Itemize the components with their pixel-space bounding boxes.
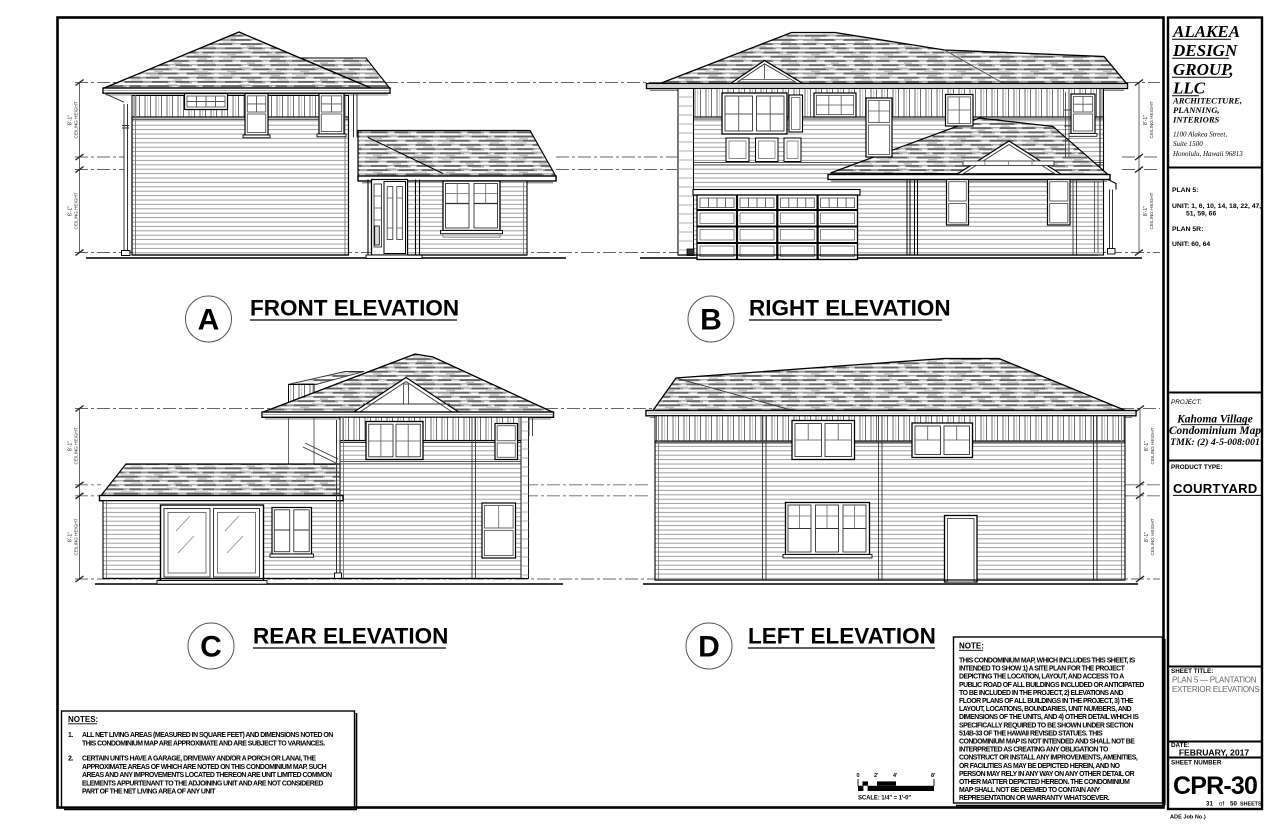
svg-text:8': 8': [931, 773, 936, 779]
svg-text:PLAN 5R:: PLAN 5R:: [1172, 226, 1203, 233]
svg-text:THIS CONDOMINIUM MAP, WHICH IN: THIS CONDOMINIUM MAP, WHICH INCLUDES THI…: [959, 658, 1136, 665]
svg-text:CEILING HEIGHT: CEILING HEIGHT: [1150, 518, 1155, 555]
svg-text:ALAKEA: ALAKEA: [1172, 22, 1240, 41]
svg-text:CEILING HEIGHT: CEILING HEIGHT: [74, 427, 79, 464]
svg-text:SPECIFICALLY REQUIRED TO BE SH: SPECIFICALLY REQUIRED TO BE SHOWN UNDER …: [959, 722, 1133, 729]
svg-text:1.: 1.: [68, 732, 73, 739]
svg-text:2': 2': [874, 773, 879, 779]
svg-text:CEILING HEIGHT: CEILING HEIGHT: [1150, 427, 1155, 464]
svg-text:NOTE:: NOTE:: [959, 642, 984, 651]
svg-text:Kahoma Village: Kahoma Village: [1176, 414, 1253, 426]
svg-text:INTENDED TO SHOW 1) A SITE PLA: INTENDED TO SHOW 1) A SITE PLAN FOR THE …: [959, 666, 1126, 673]
svg-text:PLANNING,: PLANNING,: [1173, 105, 1220, 115]
svg-text:0: 0: [857, 773, 860, 779]
svg-text:ARCHITECTURE,: ARCHITECTURE,: [1172, 96, 1242, 106]
svg-text:REPRESENTATION OR WARRANTY WHA: REPRESENTATION OR WARRANTY WHATSOEVER.: [959, 795, 1110, 802]
svg-text:UNIT: 60, 64: UNIT: 60, 64: [1172, 241, 1210, 248]
svg-text:FLOOR PLANS OF ALL BUILDINGS I: FLOOR PLANS OF ALL BUILDINGS IN THE PROJ…: [959, 698, 1134, 705]
svg-text:SHEET NUMBER: SHEET NUMBER: [1171, 760, 1222, 767]
svg-text:NOTES:: NOTES:: [68, 715, 98, 724]
svg-text:DESIGN: DESIGN: [1172, 41, 1238, 60]
svg-text:REAR ELEVATION: REAR ELEVATION: [253, 624, 448, 649]
svg-text:CEILING HEIGHT: CEILING HEIGHT: [74, 192, 79, 229]
svg-text:CONDOMINIUM MAP IS NOT INTENDE: CONDOMINIUM MAP IS NOT INTENDED AND SHAL…: [959, 739, 1135, 746]
svg-text:PROJECT:: PROJECT:: [1171, 399, 1202, 406]
svg-text:PERSON MAY RELY IN ANY WAY ON: PERSON MAY RELY IN ANY WAY ON ANY OTHER …: [959, 771, 1135, 778]
svg-text:CEILING HEIGHT: CEILING HEIGHT: [74, 101, 79, 138]
svg-text:GROUP,: GROUP,: [1173, 60, 1234, 79]
svg-text:EXTERIOR ELEVATIONS: EXTERIOR ELEVATIONS: [1172, 685, 1259, 694]
svg-text:A: A: [198, 304, 220, 337]
svg-text:PRODUCT TYPE:: PRODUCT TYPE:: [1171, 464, 1222, 471]
svg-text:THIS CONDOMINIUM MAP ARE APPRO: THIS CONDOMINIUM MAP ARE APPROXIMATE AND…: [82, 740, 325, 747]
svg-text:514B-33 OF THE HAWAII REVISED: 514B-33 OF THE HAWAII REVISED STATUES. T…: [959, 730, 1103, 737]
svg-text:SHEET TITLE:: SHEET TITLE:: [1171, 668, 1213, 675]
svg-text:SHEETS: SHEETS: [1240, 802, 1262, 808]
svg-text:Suite 1500: Suite 1500: [1173, 140, 1203, 148]
svg-text:PART OF THE NET LIVING AREA OF: PART OF THE NET LIVING AREA OF ANY UNIT: [82, 789, 216, 796]
svg-text:50: 50: [1230, 801, 1237, 808]
svg-text:PLAN 5:: PLAN 5:: [1172, 187, 1198, 194]
svg-text:2.: 2.: [68, 756, 73, 763]
svg-text:CONSTRUCT OR INSTALL ANY IMPRO: CONSTRUCT OR INSTALL ANY IMPROVEMENTS, A…: [959, 755, 1138, 762]
svg-text:ELEMENTS APPURTENANT TO THE AD: ELEMENTS APPURTENANT TO THE ADJOINING UN…: [82, 780, 323, 787]
svg-text:CPR-30: CPR-30: [1173, 772, 1257, 800]
svg-text:UNIT: 1, 6, 10, 14, 18, 22, 47: UNIT: 1, 6, 10, 14, 18, 22, 47,: [1172, 203, 1261, 210]
svg-text:DIMENSIONS OF THE UNITS, AND 4: DIMENSIONS OF THE UNITS, AND 4) OTHER DE…: [959, 714, 1139, 721]
svg-text:Condominium Map: Condominium Map: [1169, 425, 1261, 437]
svg-text:31: 31: [1206, 801, 1213, 808]
svg-text:Honolulu, Hawaii 96813: Honolulu, Hawaii 96813: [1172, 150, 1243, 158]
svg-text:APPROXIMATE AREAS OF WHICH ARE: APPROXIMATE AREAS OF WHICH ARE NOTED ON …: [82, 764, 327, 771]
svg-text:AREAS AND ANY IMPROVEMENTS LOC: AREAS AND ANY IMPROVEMENTS LOCATED THERE…: [82, 772, 332, 779]
svg-text:LAYOUT, LOCATIONS, BOUNDARIES,: LAYOUT, LOCATIONS, BOUNDARIES, UNIT NUMB…: [959, 706, 1132, 713]
svg-text:ADE Job No.): ADE Job No.): [1170, 815, 1206, 821]
svg-text:OR FACILITIES AS MAY BE DEPICT: OR FACILITIES AS MAY BE DEPICTED HEREIN,…: [959, 763, 1121, 770]
svg-text:CEILING HEIGHT: CEILING HEIGHT: [1149, 192, 1154, 229]
svg-text:TO BE INCLUDED IN THE PROJECT,: TO BE INCLUDED IN THE PROJECT, 2) ELEVAT…: [959, 690, 1124, 697]
svg-text:ALL NET LIVING AREAS (MEASURED: ALL NET LIVING AREAS (MEASURED IN SQUARE…: [82, 732, 333, 739]
svg-text:B: B: [700, 304, 722, 337]
svg-text:51, 59, 66: 51, 59, 66: [1186, 211, 1216, 218]
svg-text:INTERIORS: INTERIORS: [1172, 115, 1220, 125]
svg-text:MAP SHALL NOT BE DEEMED TO CON: MAP SHALL NOT BE DEEMED TO CONTAIN ANY: [959, 787, 1101, 794]
svg-text:SCALE: 1/4" = 1'-0": SCALE: 1/4" = 1'-0": [858, 796, 911, 802]
svg-text:CEILING HEIGHT: CEILING HEIGHT: [74, 518, 79, 555]
svg-text:D: D: [698, 631, 720, 664]
svg-text:FEBRUARY, 2017: FEBRUARY, 2017: [1179, 748, 1250, 758]
svg-text:CERTAIN UNITS HAVE A GARAGE, D: CERTAIN UNITS HAVE A GARAGE, DRIVEWAY AN…: [82, 756, 316, 763]
svg-text:LEFT ELEVATION: LEFT ELEVATION: [748, 624, 936, 649]
svg-text:TMK: (2) 4-5-008:001: TMK: (2) 4-5-008:001: [1170, 437, 1260, 448]
svg-text:PUBLIC ROAD OF ALL BUILDINGS I: PUBLIC ROAD OF ALL BUILDINGS INCLUDED OR…: [959, 682, 1144, 689]
svg-text:4': 4': [893, 773, 898, 779]
svg-text:RIGHT ELEVATION: RIGHT ELEVATION: [749, 296, 951, 321]
svg-text:DEPICTING THE LOCATION, LAYOUT: DEPICTING THE LOCATION, LAYOUT, AND ACCE…: [959, 674, 1124, 681]
svg-text:OTHER MATTER DEPICTED HEREON.: OTHER MATTER DEPICTED HEREON. THE CONDOM…: [959, 779, 1130, 786]
svg-text:COURTYARD: COURTYARD: [1173, 481, 1258, 496]
svg-text:FRONT ELEVATION: FRONT ELEVATION: [250, 296, 459, 321]
svg-text:PLAN 5 — PLANTATION: PLAN 5 — PLANTATION: [1172, 676, 1257, 685]
svg-text:INTERPRETED AS CREATING ANY OB: INTERPRETED AS CREATING ANY OBLIGATION T…: [959, 747, 1109, 754]
svg-text:C: C: [200, 631, 222, 664]
svg-text:of: of: [1219, 801, 1224, 808]
svg-text:CEILING HEIGHT: CEILING HEIGHT: [1149, 101, 1154, 138]
svg-text:1100 Alakea Street,: 1100 Alakea Street,: [1173, 131, 1227, 139]
